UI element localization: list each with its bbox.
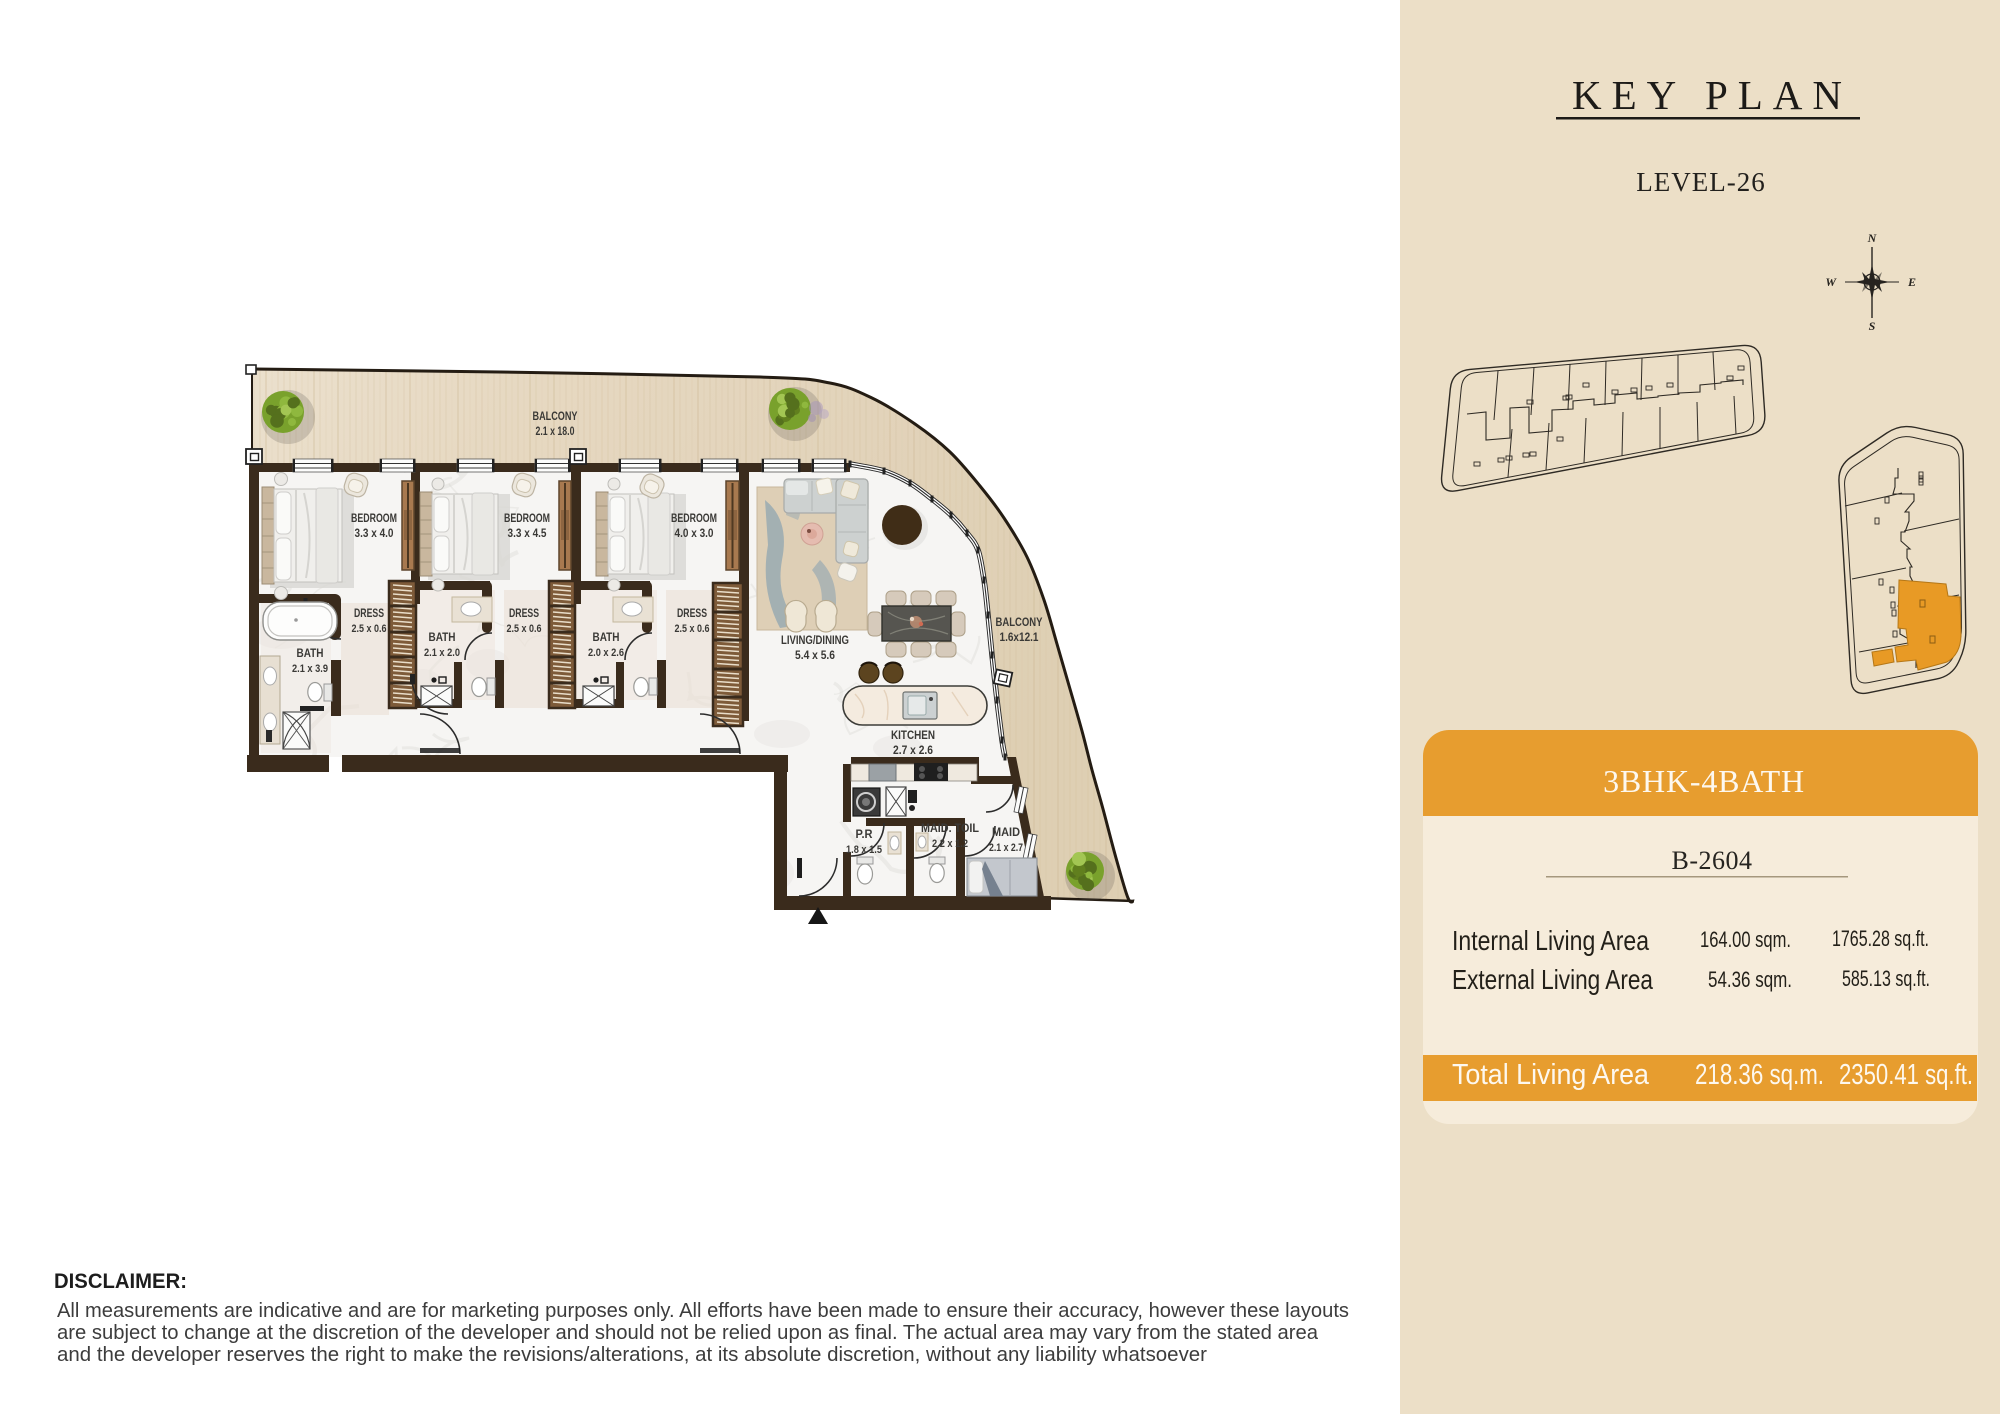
svg-text:DRESS: DRESS bbox=[354, 608, 384, 620]
svg-text:1765.28 sq.ft.: 1765.28 sq.ft. bbox=[1832, 926, 1929, 951]
svg-text:2.1 x 18.0: 2.1 x 18.0 bbox=[536, 426, 575, 438]
svg-text:E: E bbox=[1907, 275, 1916, 289]
svg-text:3.3 x 4.0: 3.3 x 4.0 bbox=[355, 528, 394, 540]
svg-text:BATH: BATH bbox=[593, 632, 620, 644]
svg-text:2.5 x 0.6: 2.5 x 0.6 bbox=[507, 623, 542, 635]
svg-text:54.36 sqm.: 54.36 sqm. bbox=[1708, 967, 1792, 992]
svg-text:2.5 x 0.6: 2.5 x 0.6 bbox=[675, 623, 710, 635]
svg-text:BALCONY: BALCONY bbox=[996, 615, 1043, 629]
svg-text:Internal Living Area: Internal Living Area bbox=[1452, 925, 1649, 956]
svg-text:BALCONY: BALCONY bbox=[533, 409, 578, 423]
svg-text:DRESS: DRESS bbox=[677, 608, 707, 620]
svg-text:All measurements are indicativ: All measurements are indicative and are … bbox=[57, 1299, 1349, 1322]
svg-text:2.1 x 2.7: 2.1 x 2.7 bbox=[989, 842, 1023, 854]
svg-text:DISCLAIMER:: DISCLAIMER: bbox=[54, 1269, 187, 1293]
svg-text:P.R: P.R bbox=[856, 829, 874, 841]
svg-text:W: W bbox=[1825, 275, 1837, 289]
svg-text:2.2 x 1.2: 2.2 x 1.2 bbox=[932, 838, 968, 850]
svg-text:3BHK-4BATH: 3BHK-4BATH bbox=[1603, 763, 1805, 799]
svg-text:BEDROOM: BEDROOM bbox=[504, 511, 550, 525]
svg-text:2.0 x 2.6: 2.0 x 2.6 bbox=[588, 647, 624, 659]
svg-text:LEVEL-26: LEVEL-26 bbox=[1636, 167, 1765, 197]
svg-text:N: N bbox=[1867, 231, 1878, 245]
svg-text:are subject to change at the d: are subject to change at the discretion … bbox=[57, 1321, 1319, 1344]
svg-text:4.0 x 3.0: 4.0 x 3.0 bbox=[675, 528, 714, 540]
svg-text:KITCHEN: KITCHEN bbox=[891, 728, 935, 742]
svg-text:BEDROOM: BEDROOM bbox=[671, 511, 717, 525]
svg-text:and the developer reserves the: and the developer reserves the right to … bbox=[57, 1343, 1207, 1366]
svg-text:Total Living Area: Total Living Area bbox=[1452, 1059, 1650, 1091]
svg-text:S: S bbox=[1869, 319, 1876, 333]
svg-text:External Living Area: External Living Area bbox=[1452, 964, 1653, 995]
svg-text:2.7 x 2.6: 2.7 x 2.6 bbox=[893, 745, 933, 757]
svg-text:KEY PLAN: KEY PLAN bbox=[1572, 72, 1852, 118]
svg-text:2350.41 sq.ft.: 2350.41 sq.ft. bbox=[1839, 1059, 1973, 1091]
svg-text:1.6x12.1: 1.6x12.1 bbox=[1000, 632, 1040, 644]
svg-text:B-2604: B-2604 bbox=[1672, 846, 1753, 875]
svg-text:3.3 x 4.5: 3.3 x 4.5 bbox=[508, 528, 548, 540]
svg-text:BATH: BATH bbox=[297, 648, 324, 660]
svg-text:218.36 sq.m.: 218.36 sq.m. bbox=[1695, 1059, 1824, 1091]
svg-text:MAID. TOIL: MAID. TOIL bbox=[921, 823, 979, 835]
svg-text:BATH: BATH bbox=[429, 632, 456, 644]
svg-text:DRESS: DRESS bbox=[509, 608, 539, 620]
svg-text:5.4 x 5.6: 5.4 x 5.6 bbox=[795, 650, 835, 662]
svg-text:BEDROOM: BEDROOM bbox=[351, 511, 397, 525]
svg-text:1.8 x 1.5: 1.8 x 1.5 bbox=[846, 844, 882, 856]
svg-text:2.1 x 3.9: 2.1 x 3.9 bbox=[292, 663, 328, 675]
svg-text:585.13 sq.ft.: 585.13 sq.ft. bbox=[1842, 966, 1930, 991]
svg-text:164.00 sqm.: 164.00 sqm. bbox=[1700, 927, 1791, 952]
svg-text:MAID: MAID bbox=[992, 827, 1020, 839]
svg-text:2.5 x 0.6: 2.5 x 0.6 bbox=[352, 623, 387, 635]
svg-text:2.1 x 2.0: 2.1 x 2.0 bbox=[424, 647, 460, 659]
svg-text:LIVING/DINING: LIVING/DINING bbox=[781, 633, 849, 647]
